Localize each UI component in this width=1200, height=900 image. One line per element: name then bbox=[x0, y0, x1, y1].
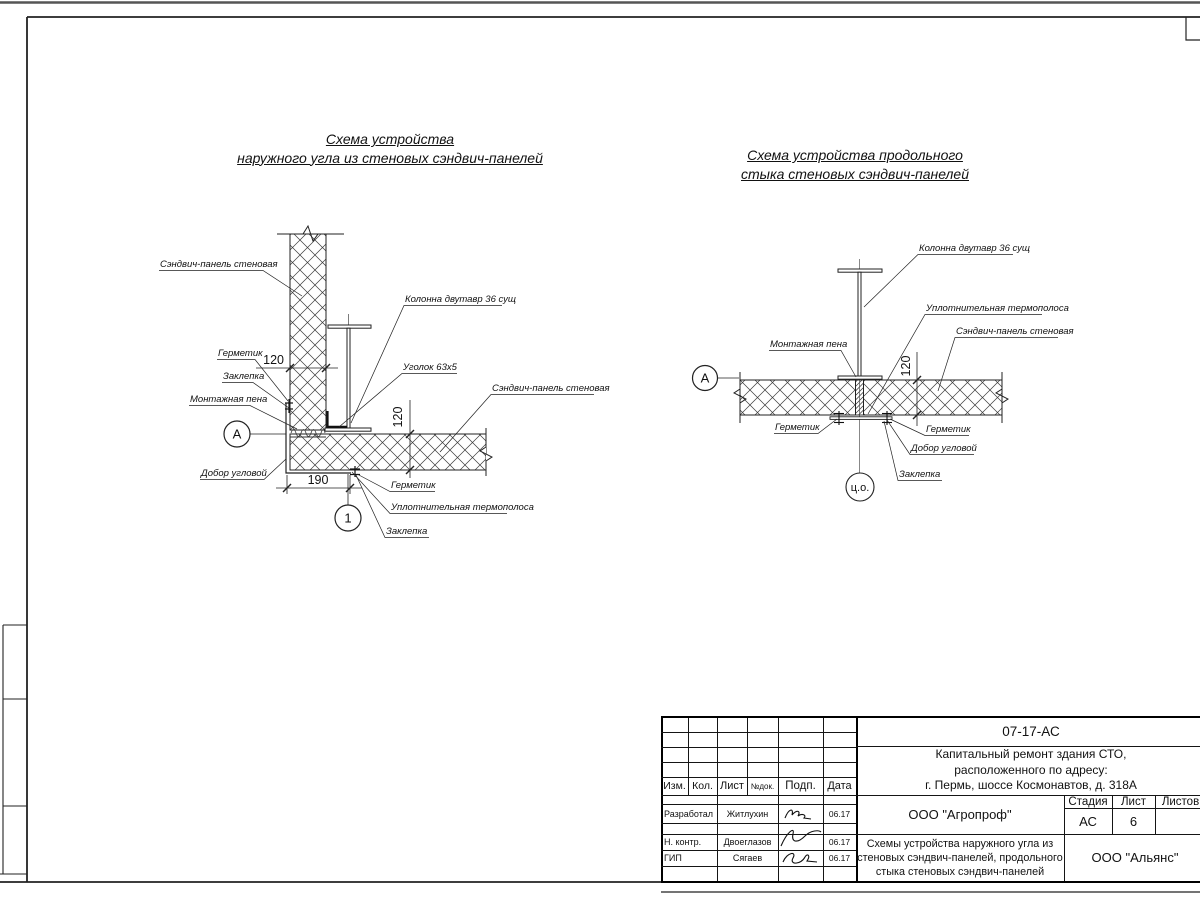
label-sandwich-panel-right: Сэндвич-панель стеновая bbox=[492, 383, 610, 394]
tb-header-podp: Подп. bbox=[778, 777, 823, 795]
tb-row-date: 06.17 bbox=[823, 804, 856, 823]
node-marker-a: А bbox=[233, 427, 242, 442]
label-foam: Монтажная пена bbox=[190, 394, 267, 405]
tb-row-name: Житлухин bbox=[717, 804, 778, 823]
tb-org-customer: ООО "Альянс" bbox=[1064, 834, 1200, 881]
tb-row-name: Двоеглазов bbox=[717, 834, 778, 850]
label-rivet-bottom: Заклепка bbox=[386, 526, 427, 537]
label-sealant-left: Герметик bbox=[775, 422, 820, 433]
label-foam: Монтажная пена bbox=[770, 339, 847, 350]
signature-1 bbox=[781, 805, 821, 822]
tb-title-line2: стеновых сэндвич-панелей, продольного bbox=[857, 851, 1062, 865]
left-diagram-drawing: 120 120 190 А 1 bbox=[159, 226, 610, 538]
label-rivet-top: Заклепка bbox=[223, 371, 264, 382]
steel-angle bbox=[328, 411, 348, 427]
node-marker-a: А bbox=[701, 371, 710, 386]
ibeam-bottom-flange bbox=[325, 428, 371, 431]
tb-title-line3: стыка стеновых сэндвич-панелей bbox=[876, 865, 1044, 879]
tb-row-role: Разработал bbox=[661, 804, 720, 823]
signature-3 bbox=[777, 849, 823, 867]
thermo-strip-joint bbox=[856, 380, 864, 415]
tb-stage-value: АС bbox=[1064, 808, 1112, 834]
title-block: Изм. Кол. Лист №док. Подп. Дата Разработ… bbox=[661, 716, 1200, 882]
dim-120-panel: 120 bbox=[391, 407, 405, 428]
tb-header-kol: Кол. bbox=[688, 777, 717, 795]
wall-panel-left bbox=[740, 380, 856, 415]
tb-project-line1: Капитальный ремонт здания СТО, bbox=[936, 747, 1127, 763]
right-diagram-drawing: 120 А ц.о. Колонна двутавр 36 сущ Уплотн… bbox=[693, 243, 1074, 501]
tb-row-name: Сягаев bbox=[717, 850, 778, 866]
tb-project-name: Капитальный ремонт здания СТО, расположе… bbox=[856, 746, 1200, 795]
signature-2 bbox=[775, 824, 825, 851]
label-corner-trim: Добор угловой bbox=[200, 468, 268, 479]
label-sealant-top: Герметик bbox=[218, 348, 263, 359]
tb-row-date: 06.17 bbox=[823, 834, 856, 850]
ibeam-bottom-flange bbox=[838, 376, 882, 379]
dim-120-panel: 120 bbox=[899, 356, 913, 377]
left-margin-boxes bbox=[0, 625, 27, 874]
label-angle: Уголок 63х5 bbox=[402, 362, 458, 373]
axis-marker: ц.о. bbox=[851, 482, 870, 494]
tb-sheet-value: 6 bbox=[1112, 808, 1155, 834]
label-rivet: Заклепка bbox=[899, 469, 940, 480]
tb-drawing-title: Схемы устройства наружного угла из стено… bbox=[856, 834, 1064, 881]
label-column: Колонна двутавр 36 сущ bbox=[405, 294, 516, 305]
tb-org-design: ООО "Агропроф" bbox=[856, 795, 1064, 834]
tb-doc-number: 07-17-АС bbox=[856, 716, 1200, 746]
tb-project-line2: расположенного по адресу: bbox=[954, 763, 1108, 779]
label-corner-trim: Добор угловой bbox=[910, 443, 978, 454]
label-sandwich-panel: Сэндвич-панель стеновая bbox=[956, 326, 1074, 337]
label-sealant-right: Герметик bbox=[926, 424, 971, 435]
tb-header-izm: Изм. bbox=[661, 777, 688, 795]
label-sandwich-panel: Сэндвич-панель стеновая bbox=[160, 259, 278, 270]
tb-header-list: Лист bbox=[717, 777, 747, 795]
ibeam-web bbox=[858, 272, 861, 376]
tb-sheet-label: Лист bbox=[1112, 795, 1155, 808]
dim-120-wall: 120 bbox=[263, 353, 284, 367]
tb-header-ndok: №док. bbox=[747, 777, 778, 795]
tb-sheets-value bbox=[1155, 808, 1200, 834]
label-thermo-strip: Уплотнительная термополоса bbox=[390, 502, 534, 513]
sheet-corner-stamp-box bbox=[1186, 17, 1200, 40]
tb-row-date: 06.17 bbox=[823, 850, 856, 866]
wall-panel-vertical bbox=[290, 234, 326, 430]
tb-sheets-label: Листов bbox=[1155, 795, 1200, 808]
dim-190-corner: 190 bbox=[308, 473, 329, 487]
label-column: Колонна двутавр 36 сущ bbox=[919, 243, 1030, 254]
label-thermo-strip: Уплотнительная термополоса bbox=[925, 303, 1069, 314]
tb-row-role: Н. контр. bbox=[661, 834, 720, 850]
label-sealant-bottom: Герметик bbox=[391, 480, 436, 491]
ibeam-web bbox=[347, 328, 350, 428]
tb-header-data: Дата bbox=[823, 777, 856, 795]
tb-title-line1: Схемы устройства наружного угла из bbox=[867, 837, 1054, 851]
drawing-sheet: Схема устройства наружного угла из стено… bbox=[0, 0, 1200, 900]
tb-project-line3: г. Пермь, шоссе Космонавтов, д. 318А bbox=[925, 778, 1137, 794]
wall-panel-horizontal bbox=[290, 434, 486, 470]
tb-row-role: ГИП bbox=[661, 850, 720, 866]
tb-stage-label: Стадия bbox=[1064, 795, 1112, 808]
detail-marker-1: 1 bbox=[344, 511, 351, 526]
